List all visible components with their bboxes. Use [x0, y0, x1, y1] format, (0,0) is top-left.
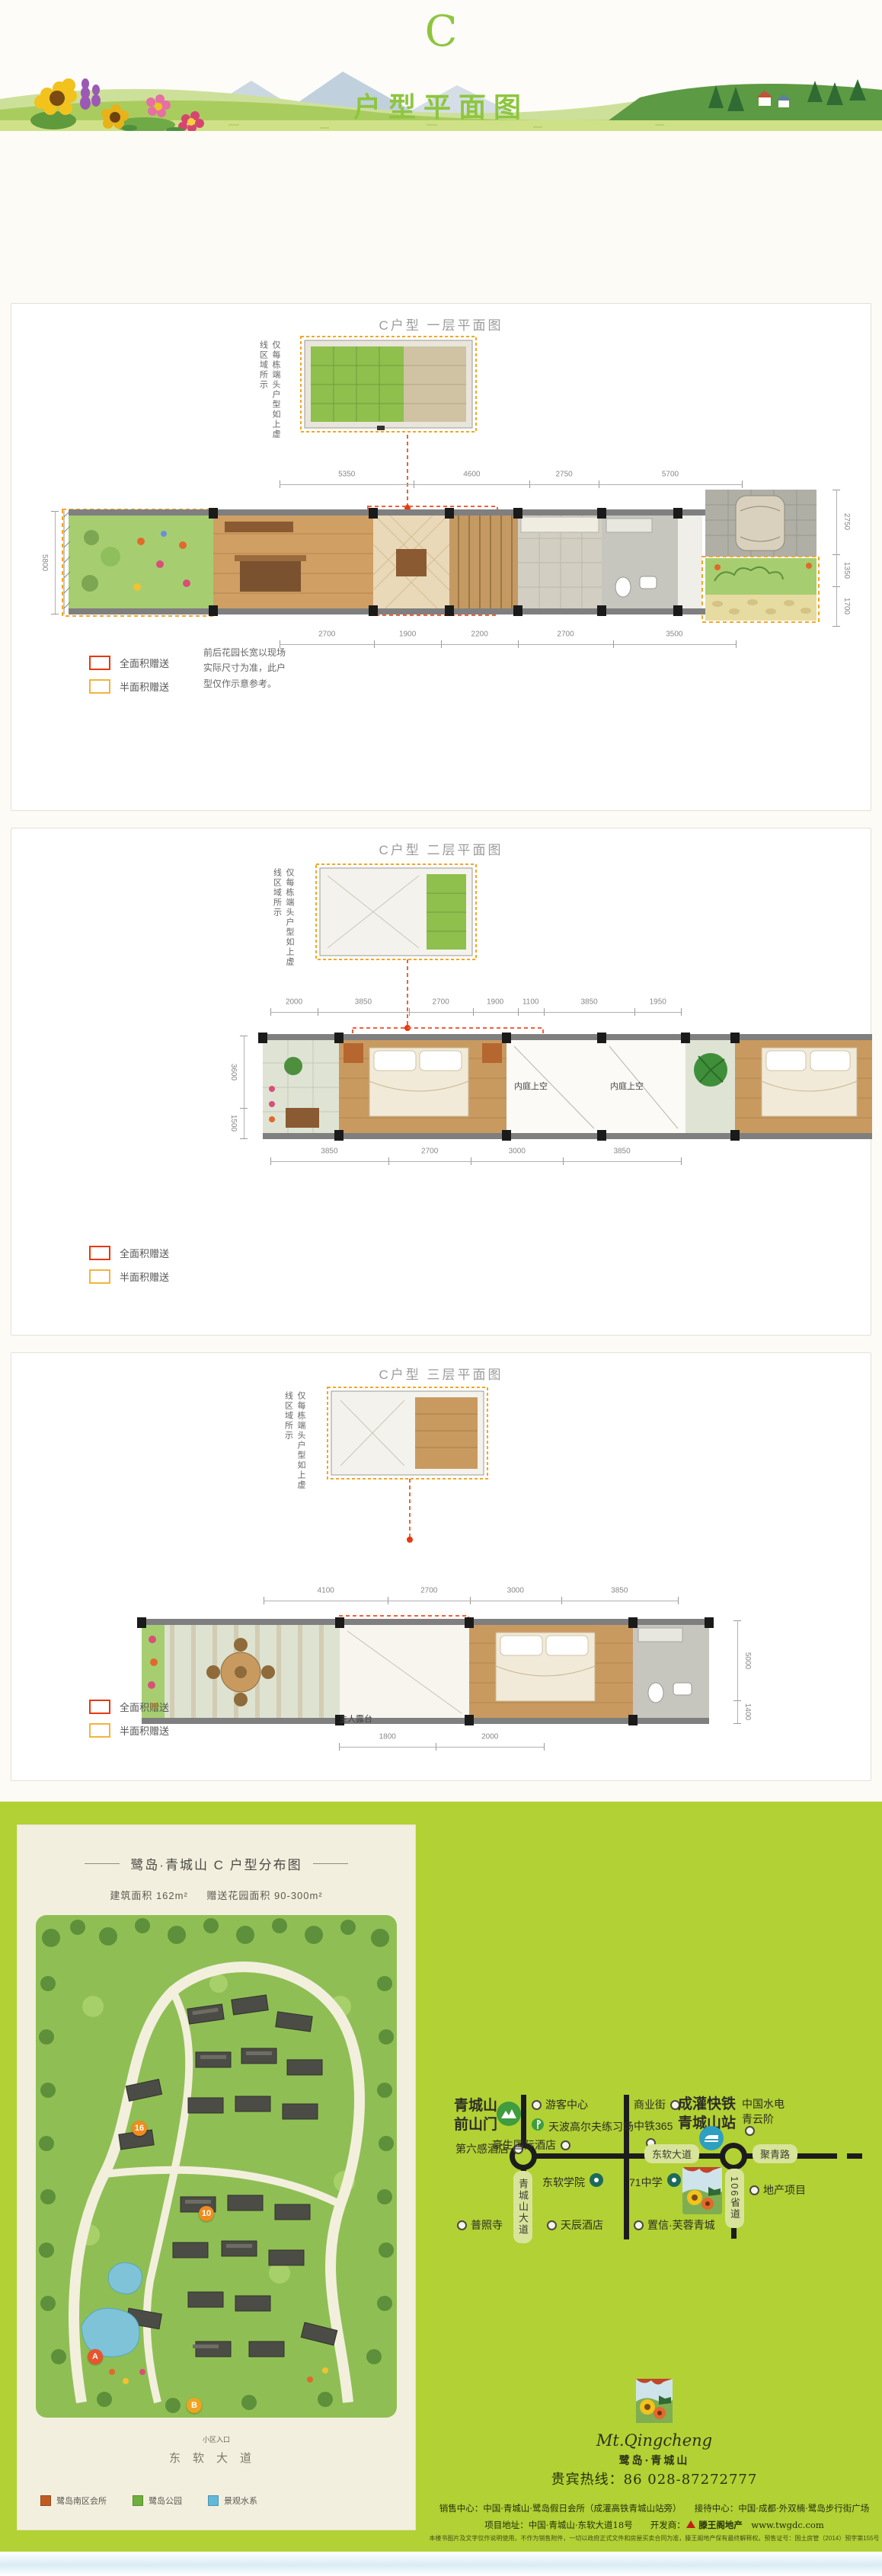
- legend-half-area: 半面积赠送: [89, 1269, 169, 1284]
- logo-script: Mt.Qingcheng: [427, 2431, 882, 2450]
- bottom-decorative-strip: [0, 2552, 882, 2576]
- page-header: C 户型平面图: [0, 0, 882, 131]
- dimension-line-bottom: 3850270030003850: [270, 1157, 682, 1165]
- floor-plan-panel-2: C户型 二层平面图 仅每栋端头户型如上虚线区域所示: [11, 828, 871, 1336]
- water-swatch: [208, 2495, 219, 2506]
- flower-project-icon: [682, 2167, 722, 2214]
- dimension-line-left: 5800: [51, 511, 59, 614]
- built-area: 建筑面积 162m²: [110, 1890, 187, 1901]
- room-label-void2: 内庭上空: [610, 1080, 644, 1092]
- legend-full-area: 全面积赠送: [89, 1700, 169, 1714]
- poi-dot: [745, 2126, 755, 2136]
- map-label-tianchen: 天辰酒店: [547, 2217, 603, 2233]
- dimension-line-bottom: 18002000: [339, 1743, 545, 1751]
- siteplan-marker-A: A: [88, 2349, 103, 2364]
- map-label-golf: 天波高尔夫练习场: [548, 2119, 634, 2134]
- clubhouse-swatch: [40, 2495, 51, 2506]
- dimension-line-bottom: 27001900220027003500: [280, 640, 737, 648]
- road-dongruan-avenue: [523, 2153, 737, 2159]
- location-map: 东软大道 聚青路 青城山大道 106省道 青城山前山门 第六感酒店 游客中心 天…: [427, 1802, 882, 2289]
- poi-dot: [532, 2100, 542, 2110]
- footer-section: 鹭岛·青城山 C 户型分布图 建筑面积 162m² 赠送花园面积 90-300m…: [0, 1802, 882, 2552]
- mountain-icon: [497, 2102, 521, 2126]
- legal-disclaimer: 本楼书图片及文字仅作说明使用，不作为销售附件，一切以政府正式文件和房屋买卖合同为…: [427, 2534, 882, 2542]
- plan-letter: C: [0, 11, 882, 53]
- plan-note: 前后花园长宽以现场实际尺寸为准，此户型仅作示意参考。: [203, 645, 289, 691]
- map-label-biz-street: 商业街: [634, 2097, 680, 2112]
- page-title: 户型平面图: [0, 85, 882, 125]
- half-area-swatch: [89, 679, 110, 694]
- golf-pin-icon: [532, 2118, 544, 2131]
- map-label-estate: 地产项目: [749, 2182, 806, 2198]
- siteplan-marker-B: B: [187, 2398, 202, 2413]
- dimension-line-top: 4100270030003850: [264, 1597, 679, 1604]
- developer-name: 滕王阁地产: [698, 2520, 743, 2530]
- panel1-legend: 全面积赠送 半面积赠送: [89, 656, 169, 703]
- road-juqing-dash: [847, 2153, 862, 2159]
- legend-park: 鹭岛公园: [133, 2495, 182, 2507]
- developer-website: www.twgdc.com: [751, 2520, 823, 2530]
- map-label-visitor-center: 游客中心: [532, 2097, 588, 2112]
- developer-logo-icon: [685, 2520, 696, 2529]
- project-logo: Mt.Qingcheng 鹭岛·青城山: [427, 2379, 882, 2468]
- contact-line-1: 销售中心：中国·青城山·鹭岛假日会所（成灌高铁青城山站旁） 接待中心：中国·成都…: [427, 2501, 882, 2517]
- roundabout-east: [720, 2143, 747, 2170]
- siteplan-card: 鹭岛·青城山 C 户型分布图 建筑面积 162m² 赠送花园面积 90-300m…: [17, 1824, 416, 2530]
- siteplan-areas: 建筑面积 162m² 赠送花园面积 90-300m²: [18, 1888, 415, 1902]
- floor-plan-panel-3: C户型 三层平面图 仅每栋端头户型如上虚线区域所示: [11, 1352, 871, 1781]
- map-label-hydro: 中国水电青云阶: [742, 2097, 788, 2127]
- room-label-terrace: 主人露台: [339, 1713, 372, 1725]
- logo-project-name: 鹭岛·青城山: [427, 2453, 882, 2468]
- vip-hotline: 贵宾热线：86 028-87272777: [427, 2469, 882, 2488]
- full-area-swatch: [89, 1246, 110, 1260]
- dimension-line-top: 5350460027505700: [280, 480, 743, 488]
- map-label-zhongtie365: 中铁365: [634, 2118, 673, 2134]
- road-label-dongruan-avenue: 东软大道: [18, 2450, 415, 2466]
- half-area-swatch: [89, 1269, 110, 1284]
- siteplan-marker-10: 10: [199, 2206, 214, 2221]
- dimension-line-top: 2000385027001900110038501950: [270, 1008, 682, 1016]
- entrance-label: 小区入口: [18, 2434, 415, 2444]
- contact-line-2: 项目地址：中国·青城山·东软大道18号 开发商： 滕王阁地产 www.twgdc…: [427, 2517, 882, 2534]
- poi-dot: [634, 2220, 644, 2230]
- dimension-line-right: 275013501700: [832, 490, 840, 627]
- legend-half-area: 半面积赠送: [89, 1723, 169, 1738]
- map-label-zhixin: 置信·芙蓉青城: [634, 2217, 715, 2233]
- legend-full-area: 全面积赠送: [89, 656, 169, 670]
- half-area-swatch: [89, 1723, 110, 1738]
- siteplan-legend: 鹭岛南区会所 鹭岛公园 景观水系: [40, 2495, 407, 2507]
- school-icon: [667, 2173, 681, 2187]
- panel2-legend: 全面积赠送 半面积赠送: [89, 1246, 169, 1293]
- map-label-neusoft: 东软学院: [542, 2175, 585, 2190]
- legend-full-area: 全面积赠送: [89, 1246, 169, 1260]
- poi-dot: [561, 2140, 570, 2150]
- garden-area: 赠送花园面积 90-300m²: [206, 1890, 322, 1901]
- road-middle: [624, 2095, 629, 2239]
- dimension-line-right: 50001400: [733, 1620, 741, 1724]
- siteplan-title: 鹭岛·青城山 C 户型分布图: [18, 1854, 415, 1873]
- poi-dot: [457, 2220, 467, 2230]
- map-label-puzhao: 普照寺: [457, 2217, 503, 2233]
- legend-water: 景观水系: [208, 2495, 257, 2507]
- road-pill-dongruan: 东软大道: [644, 2144, 699, 2163]
- floor-plan-panel-1: C户型 一层平面图 仅每栋端头户型如上虚线区域所示: [11, 303, 871, 811]
- poi-dot: [749, 2185, 759, 2195]
- road-pill-juqing: 聚青路: [753, 2144, 797, 2163]
- park-swatch: [133, 2495, 143, 2506]
- contact-block: 销售中心：中国·青城山·鹭岛假日会所（成灌高铁青城山站旁） 接待中心：中国·成都…: [427, 2501, 882, 2534]
- train-icon: [699, 2126, 724, 2150]
- full-area-swatch: [89, 656, 110, 670]
- siteplan-drawing: [36, 1915, 397, 2418]
- road-pill-106: 106省道: [725, 2169, 744, 2228]
- logo-flower-art: [636, 2379, 673, 2423]
- dimension-line-left: 36001500: [240, 1036, 248, 1139]
- map-label-qingchengshan-gate: 青城山前山门: [454, 2097, 501, 2134]
- legend-clubhouse: 鹭岛南区会所: [40, 2495, 107, 2507]
- siteplan-marker-16: 16: [132, 2121, 147, 2136]
- road-pill-qcs-avenue: 青城山大道: [513, 2171, 532, 2243]
- room-label-void1: 内庭上空: [514, 1080, 548, 1092]
- floor1-plan-drawing: [11, 304, 872, 810]
- map-label-howard-hotel: 豪生国际酒店: [492, 2137, 570, 2153]
- poi-dot: [547, 2220, 557, 2230]
- map-label-school71: 71中学: [629, 2175, 663, 2190]
- college-icon: [590, 2173, 603, 2187]
- legend-half-area: 半面积赠送: [89, 679, 169, 694]
- full-area-swatch: [89, 1700, 110, 1714]
- panel3-legend: 全面积赠送 半面积赠送: [89, 1700, 169, 1747]
- map-label-hydro-dot: [745, 2124, 759, 2137]
